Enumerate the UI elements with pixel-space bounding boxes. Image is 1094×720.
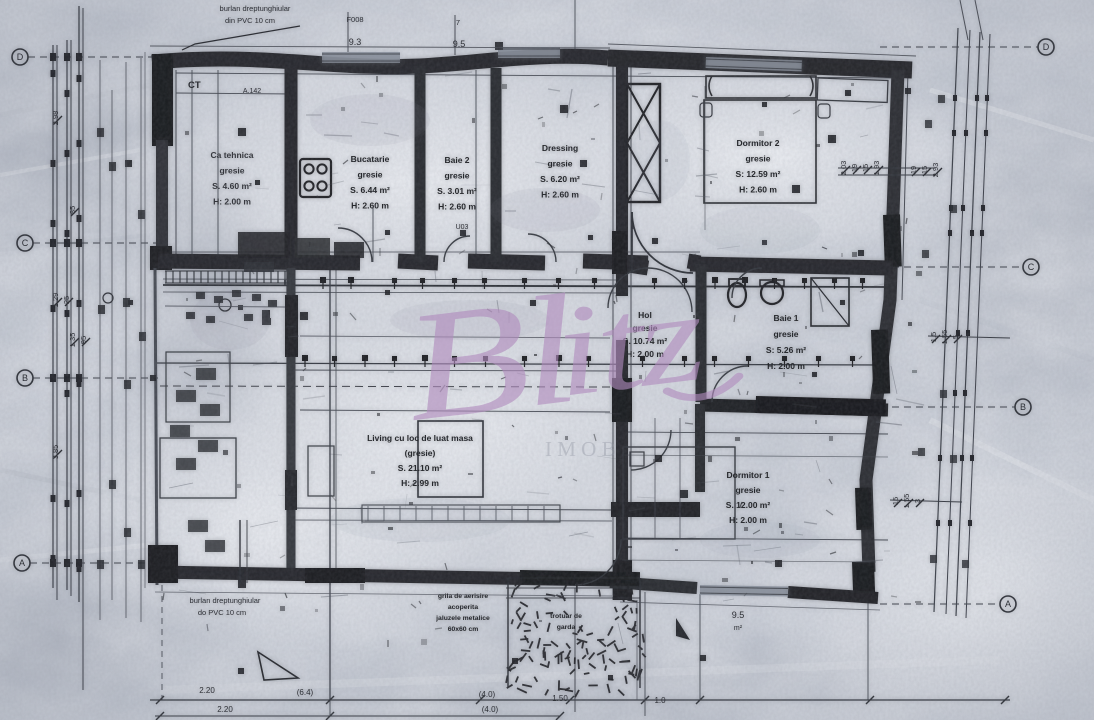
svg-text:I M O B: I M O B xyxy=(545,437,616,461)
